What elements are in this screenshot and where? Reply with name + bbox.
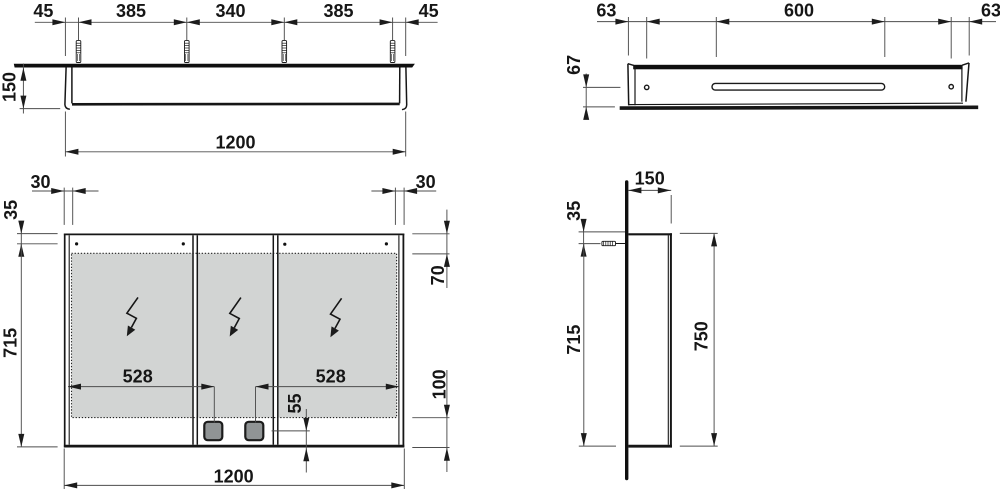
svg-text:385: 385 <box>323 1 353 21</box>
svg-text:100: 100 <box>430 369 450 399</box>
svg-text:1200: 1200 <box>214 466 254 486</box>
svg-text:67: 67 <box>564 55 584 75</box>
svg-text:35: 35 <box>1 200 21 220</box>
svg-text:340: 340 <box>215 1 245 21</box>
svg-text:150: 150 <box>0 72 20 102</box>
svg-text:45: 45 <box>33 1 53 21</box>
svg-text:55: 55 <box>285 393 305 413</box>
svg-text:35: 35 <box>564 201 584 221</box>
svg-text:715: 715 <box>0 328 20 358</box>
svg-text:70: 70 <box>428 265 448 285</box>
svg-text:150: 150 <box>635 169 665 189</box>
svg-text:528: 528 <box>123 367 153 387</box>
svg-text:528: 528 <box>316 367 346 387</box>
svg-text:750: 750 <box>692 321 712 351</box>
svg-text:1200: 1200 <box>215 132 255 152</box>
svg-text:385: 385 <box>116 1 146 21</box>
svg-text:63: 63 <box>981 1 1000 21</box>
svg-text:45: 45 <box>419 1 439 21</box>
svg-text:63: 63 <box>596 1 616 21</box>
svg-text:30: 30 <box>30 172 50 192</box>
svg-text:30: 30 <box>416 172 436 192</box>
svg-text:600: 600 <box>784 1 814 21</box>
svg-text:715: 715 <box>564 325 584 355</box>
